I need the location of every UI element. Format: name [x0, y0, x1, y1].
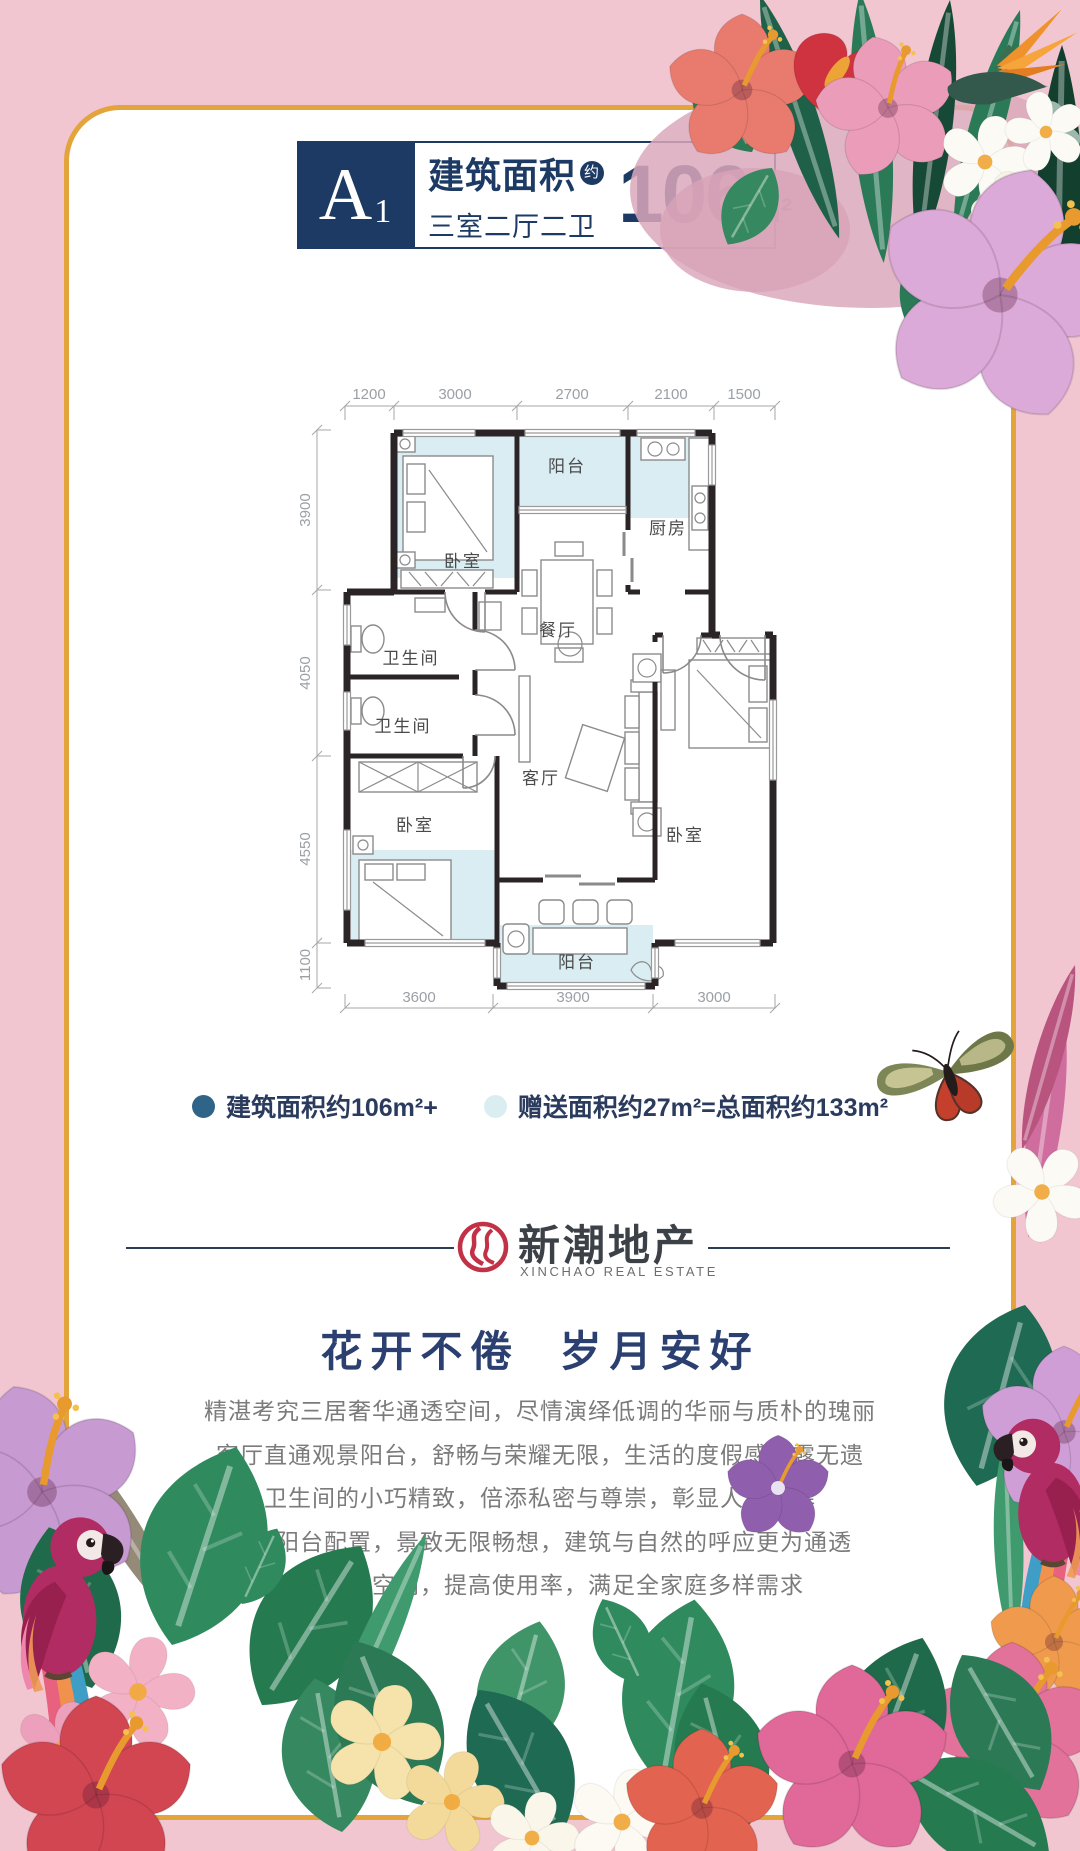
room-label-bathroom-1: 卫生间	[383, 649, 440, 668]
unit-index: 1	[374, 195, 391, 229]
room-label-bathroom-2: 卫生间	[375, 717, 432, 736]
description-line: 超大赠送空间，提高使用率，满足全家庭多样需求	[190, 1564, 890, 1608]
rooms-spec: 三室二厅二卫	[428, 205, 618, 244]
dim-left-3: 4550	[297, 832, 314, 865]
room-label-living: 客厅	[522, 769, 560, 788]
built-area-dot-icon	[192, 1095, 215, 1118]
logo-divider-right	[708, 1247, 950, 1249]
area-unit: m²	[751, 192, 793, 231]
dim-top-3: 2700	[555, 388, 588, 403]
area-value: 106	[618, 154, 749, 236]
area-header-left: 建筑面积 约 三室二厅二卫	[415, 147, 618, 244]
dim-left-4: 1100	[297, 949, 314, 981]
description-line: 卫生间的小巧精致，倍添私密与尊崇，彰显人性光辉	[190, 1477, 890, 1521]
room-label-dining: 餐厅	[539, 621, 577, 640]
dim-left-2: 4050	[297, 656, 314, 689]
dimension-bottom: 3600 3900 3000	[340, 989, 780, 1013]
room-label-bedroom-top-left: 卧室	[444, 552, 482, 571]
furniture	[351, 436, 771, 981]
tagline: 花开不倦 岁月安好	[64, 1318, 1016, 1379]
bird-of-paradise-icon	[936, 7, 1080, 112]
dim-bottom-3: 3000	[697, 989, 730, 1006]
unit-code-badge: A 1	[297, 141, 413, 249]
gift-area-label: 赠送面积约27m²=总面积约133m²	[518, 1088, 888, 1124]
dim-left-1: 3900	[297, 493, 314, 526]
dim-top-5: 1500	[727, 388, 760, 403]
approx-badge: 约	[580, 161, 604, 185]
dim-top-4: 2100	[654, 388, 687, 403]
room-label-balcony-top: 阳台	[548, 457, 586, 476]
room-label-balcony-bottom: 阳台	[558, 953, 596, 972]
dim-top-2: 3000	[438, 388, 471, 403]
dimension-top: 1200 3000 2700 2100 1500	[340, 388, 780, 420]
xinchao-logo-icon	[454, 1218, 512, 1276]
area-label: 建筑面积	[428, 147, 576, 199]
room-label-kitchen: 厨房	[649, 519, 687, 538]
dim-bottom-2: 3900	[556, 989, 589, 1006]
description-line: 客厅直通观景阳台，舒畅与荣耀无限，生活的度假感表露无遗	[190, 1434, 890, 1478]
dimension-left: 3900 4050 4550 1100	[297, 425, 331, 993]
gift-area-dot-icon	[484, 1095, 507, 1118]
description-line: 精湛考究三居奢华通透空间，尽情演绎低调的华丽与质朴的瑰丽	[190, 1390, 890, 1434]
unit-code: A	[319, 158, 372, 232]
room-label-bedroom-bottom-left: 卧室	[396, 816, 434, 835]
dim-top-1: 1200	[352, 388, 385, 403]
dim-bottom-1: 3600	[402, 989, 435, 1006]
legend-gift-item: 赠送面积约27m²=总面积约133m²	[484, 1088, 888, 1124]
description-line: 超大阳台配置，景致无限畅想，建筑与自然的呼应更为通透	[190, 1521, 890, 1565]
room-label-bedroom-bottom-right: 卧室	[666, 826, 704, 845]
legend-built-item: 建筑面积约106m²+	[192, 1088, 438, 1124]
built-area-label: 建筑面积约106m²+	[226, 1088, 438, 1124]
area-header-box: 建筑面积 约 三室二厅二卫 106 m²	[413, 141, 776, 249]
logo-name-en: XINCHAO REAL ESTATE	[520, 1264, 718, 1279]
floor-plan: 卧室 阳台 厨房 餐厅 卫生间 卫生间 客厅 卧室 卧室 阳台 1200 300…	[293, 388, 793, 1038]
logo-divider-left	[126, 1247, 454, 1249]
area-legend: 建筑面积约106m²+ 赠送面积约27m²=总面积约133m²	[64, 1088, 1016, 1124]
area-value-group: 106 m²	[618, 154, 796, 236]
description-block: 精湛考究三居奢华通透空间，尽情演绎低调的华丽与质朴的瑰丽 客厅直通观景阳台，舒畅…	[190, 1390, 890, 1608]
